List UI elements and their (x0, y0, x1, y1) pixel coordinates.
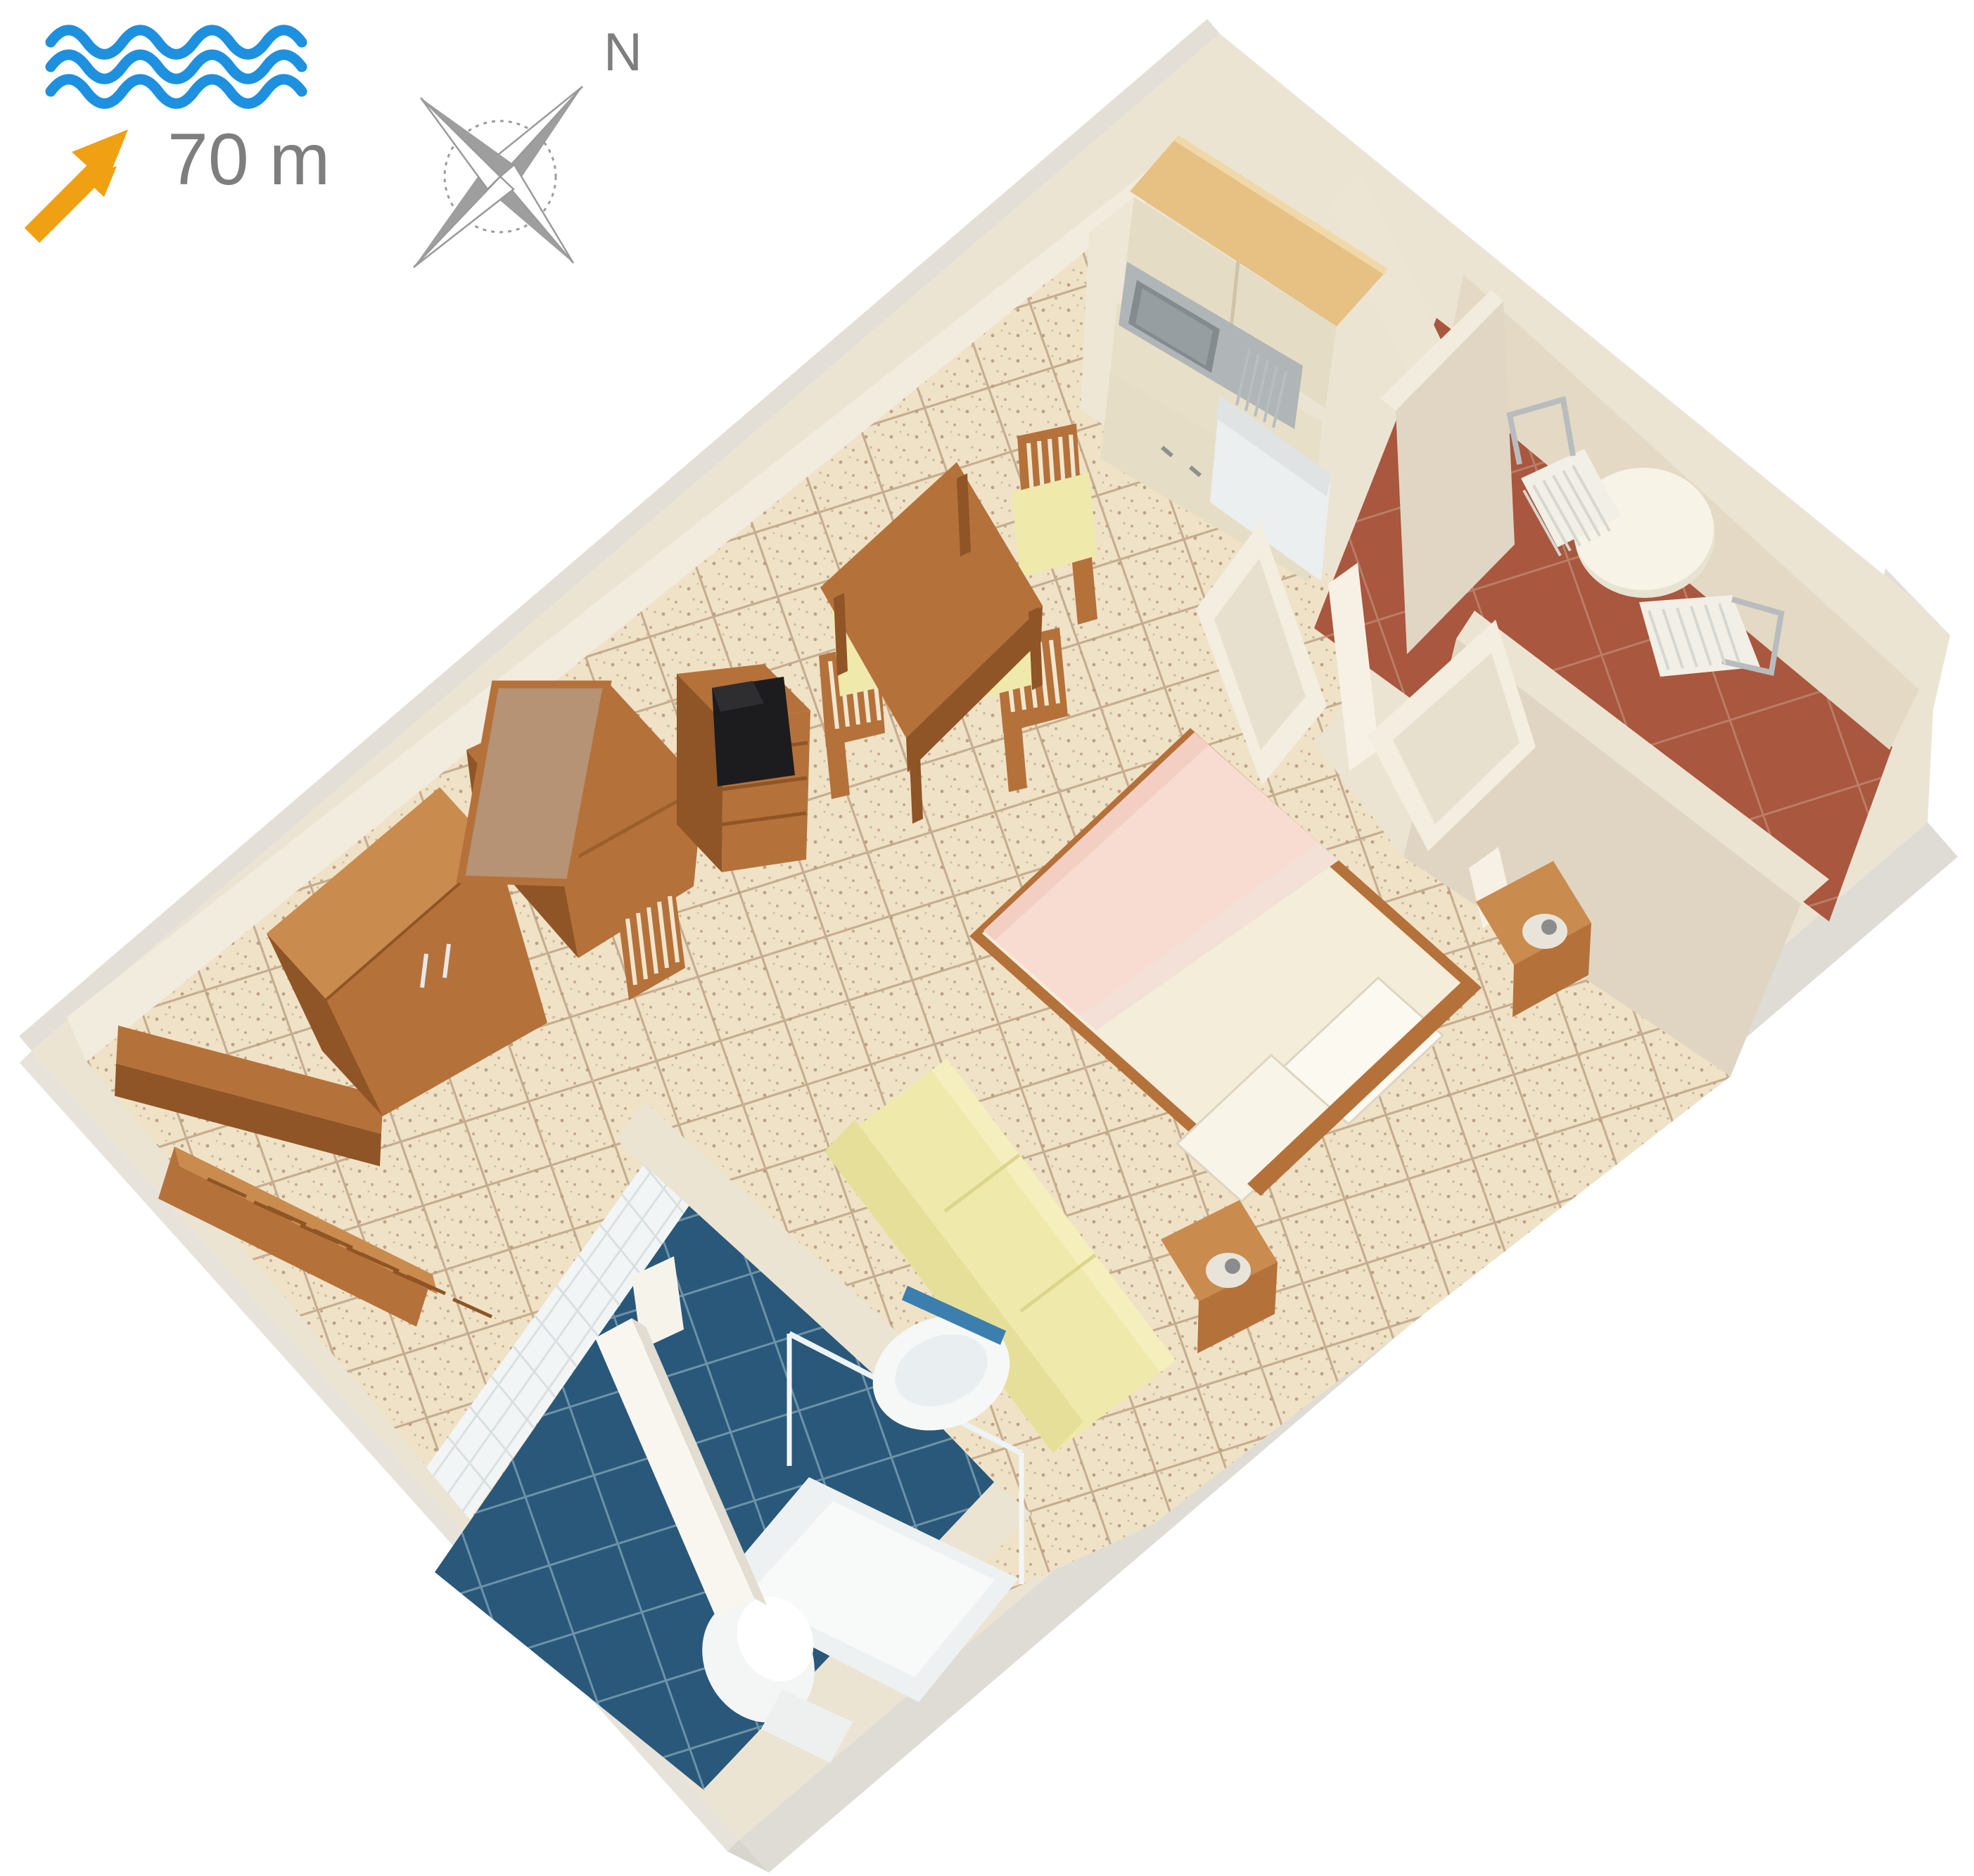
svg-text:70 m: 70 m (167, 119, 330, 200)
svg-text:N: N (604, 23, 642, 82)
